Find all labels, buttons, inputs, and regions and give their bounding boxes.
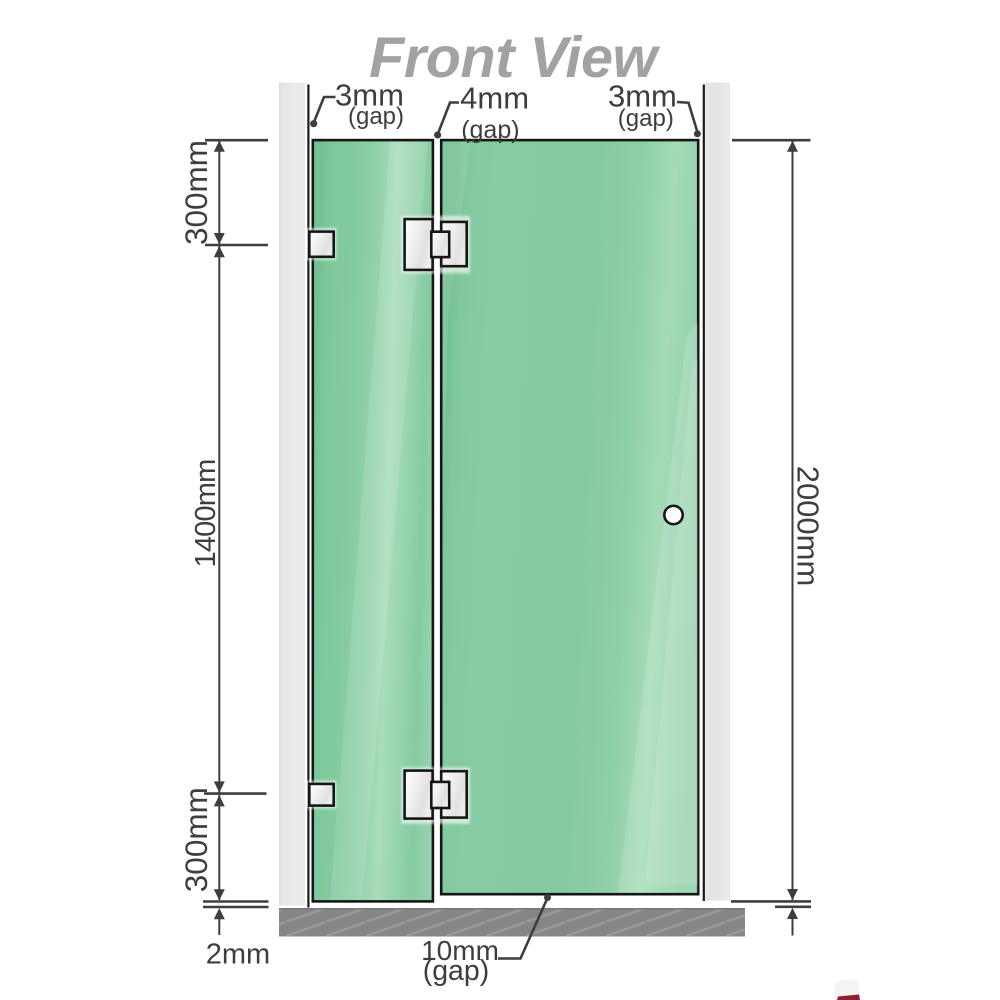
svg-text:(gap): (gap) (461, 116, 519, 144)
svg-text:(gap): (gap) (423, 955, 490, 987)
svg-text:2000mm: 2000mm (791, 466, 826, 587)
svg-text:300mm: 300mm (178, 787, 214, 892)
svg-text:2mm: 2mm (206, 939, 270, 971)
svg-text:4mm: 4mm (460, 81, 529, 116)
svg-text:(gap): (gap) (348, 103, 404, 130)
svg-text:300mm: 300mm (178, 140, 214, 245)
svg-text:1400mm: 1400mm (190, 459, 222, 567)
svg-text:(gap): (gap) (618, 105, 674, 132)
